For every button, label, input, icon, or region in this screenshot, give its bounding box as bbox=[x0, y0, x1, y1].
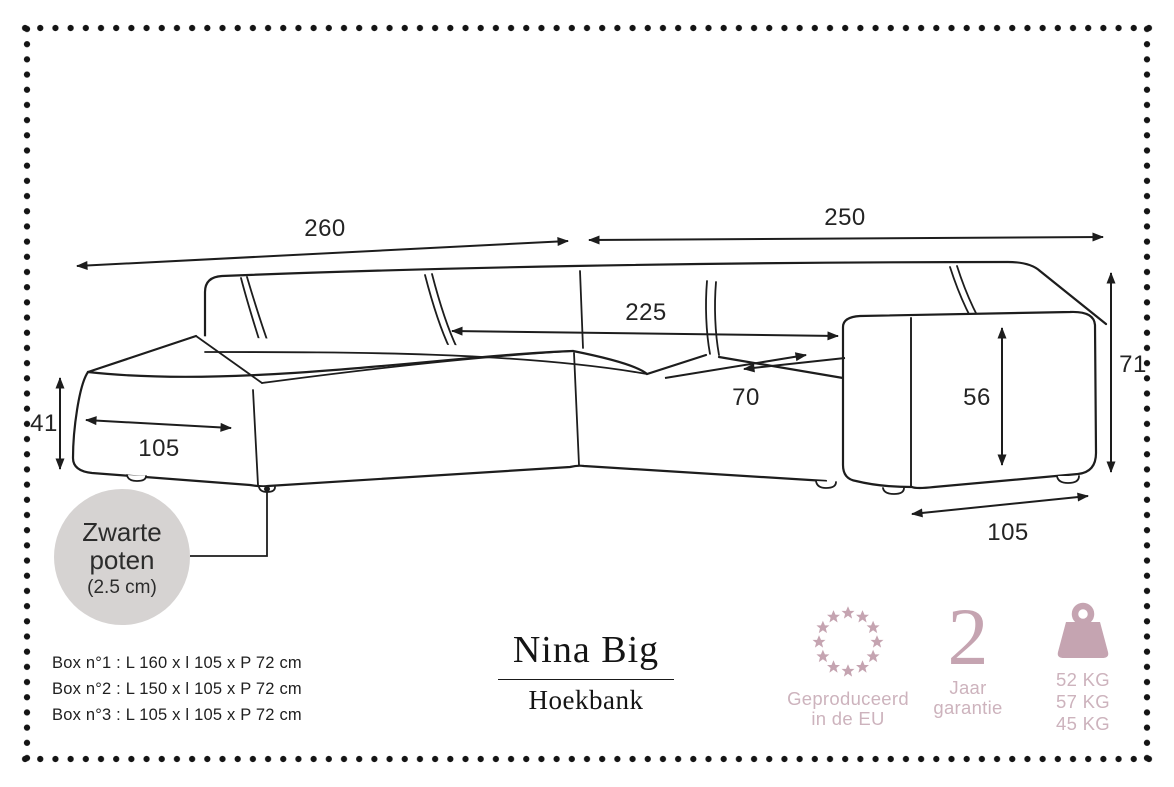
legs-note-line1: Zwarte bbox=[82, 517, 161, 547]
warranty-badge: 2 Jaar garantie bbox=[918, 596, 1018, 718]
dimension-label-41: 41 bbox=[30, 410, 58, 437]
weight-value-3: 45 KG bbox=[1033, 713, 1133, 735]
warranty-years-number: 2 bbox=[918, 596, 1018, 678]
dimension-line-260 bbox=[77, 241, 568, 266]
made-in-eu-label-line2: in de EU bbox=[783, 709, 913, 729]
made-in-eu-label-line1: Geproduceerd bbox=[783, 689, 913, 709]
warranty-label-line1: Jaar bbox=[918, 678, 1018, 698]
dimension-label-70: 70 bbox=[732, 384, 760, 411]
weight-icon bbox=[1052, 602, 1114, 660]
dimension-label-225: 225 bbox=[625, 299, 667, 326]
warranty-label-line2: garantie bbox=[918, 698, 1018, 718]
product-type: Hoekbank bbox=[436, 685, 736, 716]
product-name: Nina Big bbox=[498, 628, 674, 680]
legs-note-connector-dot bbox=[264, 486, 270, 492]
dimension-label-71: 71 bbox=[1119, 351, 1147, 378]
dimension-label-260: 260 bbox=[304, 215, 346, 242]
dimension-label-250: 250 bbox=[824, 204, 866, 231]
eu-stars-icon bbox=[808, 603, 888, 681]
legs-note: Zwarte poten (2.5 cm) bbox=[54, 486, 270, 625]
legs-note-connector bbox=[190, 491, 267, 556]
dimension-label-56: 56 bbox=[963, 384, 991, 411]
product-title-block: Nina Big Hoekbank bbox=[436, 628, 736, 716]
product-dimension-sheet: 260 250 225 70 56 71 41 105 105 Zwarte p… bbox=[0, 0, 1174, 787]
dimension-line-250 bbox=[589, 237, 1103, 240]
legs-note-line2: poten bbox=[89, 545, 154, 575]
sofa-seat bbox=[73, 336, 843, 487]
weight-badge: 52 KG 57 KG 45 KG bbox=[1033, 602, 1133, 735]
made-in-eu-badge: Geproduceerd in de EU bbox=[783, 603, 913, 729]
weight-value-1: 52 KG bbox=[1033, 669, 1133, 691]
box-2-dimensions: Box n°2 : L 150 x l 105 x P 72 cm bbox=[52, 676, 302, 702]
box-1-dimensions: Box n°1 : L 160 x l 105 x P 72 cm bbox=[52, 650, 302, 676]
dimension-line-105-armrest bbox=[912, 496, 1088, 514]
box-3-dimensions: Box n°3 : L 105 x l 105 x P 72 cm bbox=[52, 702, 302, 728]
dimension-label-105-chaise: 105 bbox=[138, 435, 180, 462]
legs-note-size: (2.5 cm) bbox=[87, 577, 157, 598]
dimension-label-105-armrest: 105 bbox=[987, 519, 1029, 546]
box-dimensions-list: Box n°1 : L 160 x l 105 x P 72 cm Box n°… bbox=[52, 650, 302, 728]
weight-value-2: 57 KG bbox=[1033, 691, 1133, 713]
